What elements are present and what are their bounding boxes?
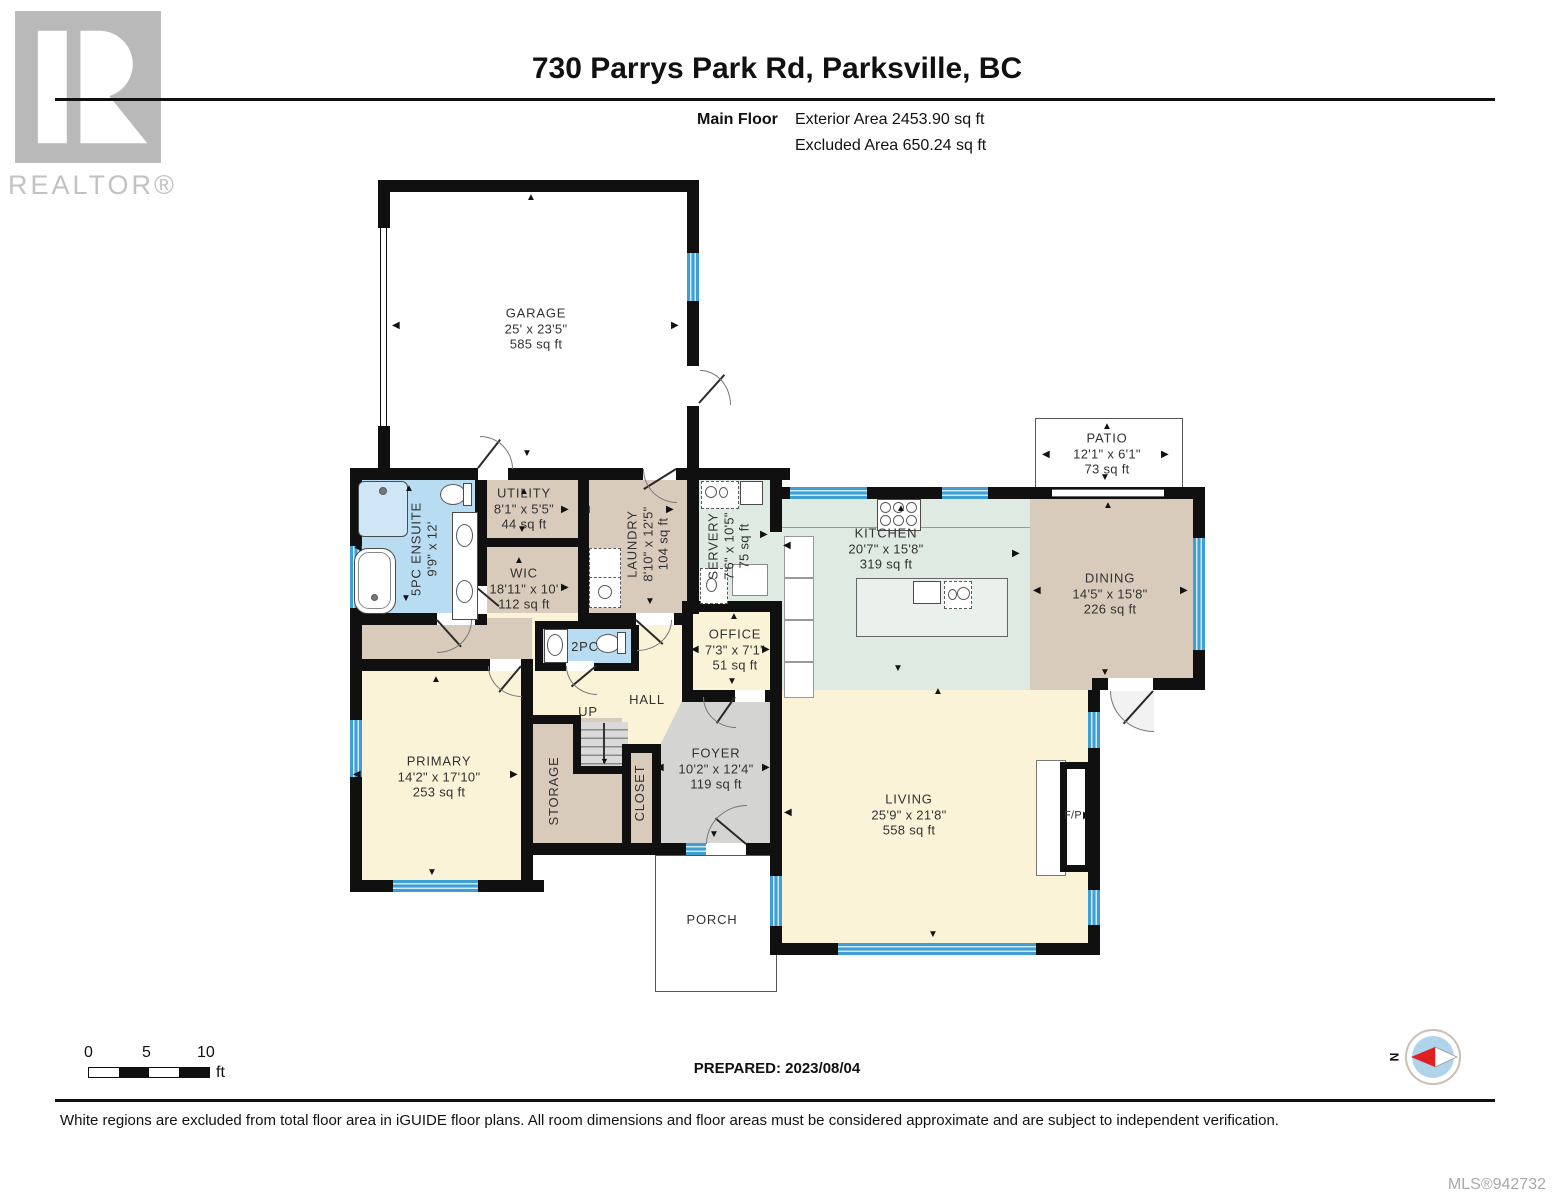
dim-arrow: ▼ — [893, 664, 903, 674]
wall — [652, 744, 661, 844]
room-dims: 25' x 23'5" — [505, 321, 568, 337]
floor-plan-page: REALTOR® 730 Parrys Park Rd, Parksville,… — [0, 0, 1553, 1200]
room-area: 75 sq ft — [737, 512, 753, 580]
room-label-laundry: LAUNDRY 8'10" x 12'5" 104 sq ft — [625, 506, 672, 581]
scale-bar: 0 5 10 ft — [84, 1044, 264, 1084]
room-area: 319 sq ft — [848, 557, 923, 573]
door-opening — [478, 468, 508, 480]
room-name: OFFICE — [705, 627, 765, 643]
header-divider — [55, 98, 1495, 101]
room-name: LIVING — [871, 792, 946, 808]
burner-icon — [880, 502, 891, 513]
room-area: 51 sq ft — [705, 658, 765, 674]
room-dims: 14'5" x 15'8" — [1072, 586, 1147, 602]
sink-icon — [547, 634, 563, 656]
patio-slider-door — [1052, 489, 1164, 497]
room-name: SERVERY — [706, 512, 722, 580]
room-dims: 10'2" x 12'4" — [678, 761, 753, 777]
room-name: DINING — [1072, 571, 1147, 587]
sink-icon — [456, 524, 473, 547]
garage-door-track — [380, 228, 387, 426]
room-label-porch: PORCH — [687, 912, 738, 928]
servery-sink-icon — [740, 481, 763, 505]
room-dims: 12'1" x 6'1" — [1073, 446, 1141, 462]
dim-arrow: ◀ — [691, 645, 699, 655]
dim-arrow: ▶ — [666, 505, 674, 515]
room-dims: 7'6" x 10'5" — [721, 512, 737, 580]
window — [393, 880, 478, 892]
room-dims: 8'10" x 12'5" — [640, 506, 656, 581]
dim-arrow: ▶ — [762, 645, 770, 655]
wall — [378, 180, 698, 192]
room-label-primary: PRIMARY 14'2" x 17'10" 253 sq ft — [398, 754, 481, 801]
room-name: WIC — [489, 566, 558, 582]
wall — [475, 538, 585, 547]
room-label-wic: WIC 18'11" x 10' 112 sq ft — [489, 566, 558, 613]
room-area: 585 sq ft — [505, 337, 568, 353]
door-opening — [735, 690, 765, 702]
burner-icon — [906, 515, 917, 526]
dim-arrow: ▶ — [762, 763, 770, 773]
room-label-patio: PATIO 12'1" x 6'1" 73 sq ft — [1073, 431, 1141, 478]
room-area: 104 sq ft — [656, 506, 672, 581]
exterior-area: Exterior Area 2453.90 sq ft — [795, 111, 984, 129]
door-opening — [706, 843, 746, 855]
room-label-dining: DINING 14'5" x 15'8" 226 sq ft — [1072, 571, 1147, 618]
room-dims: 14'2" x 17'10" — [398, 769, 481, 785]
dim-arrow: ◀ — [582, 505, 590, 515]
dim-arrow: ▶ — [1012, 549, 1020, 559]
dim-arrow: ▲ — [431, 675, 441, 685]
door-swing — [700, 370, 731, 405]
dim-arrow: ▼ — [1100, 668, 1110, 678]
toilet-tank-icon — [463, 483, 472, 506]
room-label-ensuite: 5PC ENSUITE 9'9" x 12' — [408, 502, 439, 596]
room-name: PATIO — [1073, 431, 1141, 447]
scale-unit: ft — [216, 1064, 225, 1082]
dim-arrow: ◀ — [690, 540, 698, 550]
wall — [350, 468, 790, 480]
room-area: 119 sq ft — [678, 777, 753, 793]
dim-arrow: ▼ — [727, 677, 737, 687]
room-label-living: LIVING 25'9" x 21'8" 558 sq ft — [871, 792, 946, 839]
room-dims: 9'9" x 12' — [424, 502, 440, 596]
window — [770, 876, 782, 926]
dim-arrow: ◀ — [353, 770, 361, 780]
burner-icon — [893, 515, 904, 526]
dim-arrow: ▶ — [561, 505, 569, 515]
prepared-date: PREPARED: 2023/08/04 — [694, 1060, 860, 1077]
dim-arrow: ▲ — [709, 694, 719, 704]
dim-arrow: ▲ — [526, 193, 536, 203]
room-dims: 8'1" x 5'5" — [494, 501, 554, 517]
dim-arrow: ◀ — [656, 763, 664, 773]
dim-arrow: ▲ — [519, 487, 529, 497]
wall — [530, 715, 578, 724]
room-name: PORCH — [687, 912, 738, 928]
island-sink-icon — [913, 581, 941, 604]
scale-tick-5: 5 — [142, 1044, 151, 1062]
window — [838, 943, 1036, 955]
realtor-logo-text: REALTOR® — [8, 170, 177, 201]
burner-icon — [906, 502, 917, 513]
room-label-kitchen: KITCHEN 20'7" x 15'8" 319 sq ft — [848, 526, 923, 573]
wall — [622, 744, 631, 844]
room-name: LAUNDRY — [625, 506, 641, 581]
room-label-closet: CLOSET — [632, 765, 648, 822]
room-label-servery: SERVERY 7'6" x 10'5" 75 sq ft — [706, 512, 753, 580]
dim-arrow: ▼ — [401, 594, 411, 604]
wall — [521, 659, 533, 892]
window — [1088, 890, 1100, 925]
dim-arrow: ▼ — [645, 597, 655, 607]
dryer-door-icon — [598, 585, 612, 599]
window — [1088, 712, 1100, 748]
footer-divider — [55, 1099, 1495, 1102]
burner-icon — [880, 515, 891, 526]
disclaimer-text: White regions are excluded from total fl… — [60, 1112, 1279, 1129]
mls-number: MLS®942732 — [1448, 1176, 1546, 1194]
wall — [687, 180, 699, 480]
compass-north-label: N — [1387, 1053, 1401, 1062]
dim-arrow: ▶ — [760, 530, 768, 540]
room-name: PRIMARY — [398, 754, 481, 770]
scale-bar-segments — [88, 1067, 210, 1078]
dim-arrow: ▶ — [1083, 811, 1091, 821]
room-label-2pc: 2PC — [571, 639, 599, 655]
room-name: STORAGE — [546, 757, 562, 826]
room-name: FOYER — [678, 746, 753, 762]
dim-arrow: ▼ — [522, 449, 532, 459]
room-area: 253 sq ft — [398, 785, 481, 801]
servery-burner-icon — [705, 486, 717, 498]
stairs-up-label: UP — [578, 704, 598, 720]
fireplace-label: F/P — [1064, 809, 1082, 822]
room-label-foyer: FOYER 10'2" x 12'4" 119 sq ft — [678, 746, 753, 793]
kitchen-cabinet — [784, 578, 814, 620]
room-name: 5PC ENSUITE — [408, 502, 424, 596]
room-label-storage: STORAGE — [546, 757, 562, 826]
dim-arrow: ▼ — [709, 830, 719, 840]
dim-arrow: ▶ — [1161, 450, 1169, 460]
door-opening — [687, 366, 699, 406]
compass-icon — [1404, 1028, 1462, 1086]
room-name: F/P — [1064, 809, 1082, 822]
excluded-area: Excluded Area 650.24 sq ft — [795, 137, 986, 155]
dim-arrow: ▲ — [729, 612, 739, 622]
drain-icon — [371, 594, 378, 601]
realtor-logo — [12, 8, 164, 166]
room-name: HALL — [629, 692, 665, 708]
room-area: 112 sq ft — [489, 597, 558, 613]
dim-arrow: ◀ — [1033, 586, 1041, 596]
room-name: KITCHEN — [848, 526, 923, 542]
page-title: 730 Parrys Park Rd, Parksville, BC — [532, 52, 1022, 86]
room-dims: 25'9" x 21'8" — [871, 807, 946, 823]
kitchen-cabinet — [784, 662, 814, 698]
room-label-garage: GARAGE 25' x 23'5" 585 sq ft — [505, 306, 568, 353]
floor-label: Main Floor — [697, 111, 778, 129]
door-swing — [480, 436, 513, 469]
dim-arrow: ◀ — [784, 808, 792, 818]
window — [942, 487, 988, 499]
servery-burner-icon — [719, 487, 728, 498]
room-area: 558 sq ft — [871, 823, 946, 839]
dishwasher-dot-icon — [948, 589, 957, 600]
room-dims: 7'3" x 7'1" — [705, 642, 765, 658]
wall — [378, 180, 390, 228]
dim-arrow: ▼ — [1100, 473, 1110, 483]
room-name: UP — [578, 704, 598, 720]
window — [790, 487, 867, 499]
scale-tick-0: 0 — [84, 1044, 93, 1062]
toilet-tank-icon — [617, 632, 626, 654]
wine-bottle-icon — [706, 578, 717, 592]
door-opening — [1108, 678, 1153, 690]
room-name: GARAGE — [505, 306, 568, 322]
dim-arrow: ▲ — [1103, 501, 1113, 511]
dim-arrow: ◀ — [354, 543, 362, 553]
dim-arrow: ▲ — [933, 687, 943, 697]
dim-arrow: ▲ — [514, 556, 524, 566]
wall — [573, 766, 628, 774]
room-label-office: OFFICE 7'3" x 7'1" 51 sq ft — [705, 627, 765, 674]
room-name: 2PC — [571, 639, 599, 655]
compass: N — [1388, 1028, 1464, 1088]
dim-arrow: ▶ — [1180, 586, 1188, 596]
dim-arrow: ▶ — [510, 770, 518, 780]
room-area: 226 sq ft — [1072, 602, 1147, 618]
room-name: CLOSET — [632, 765, 648, 822]
wall — [770, 468, 782, 532]
room-dims: 18'11" x 10' — [489, 581, 558, 597]
dim-arrow: ▲ — [404, 484, 414, 494]
window — [1193, 538, 1205, 650]
washer-icon — [589, 548, 621, 579]
scale-tick-10: 10 — [197, 1044, 215, 1062]
window — [686, 843, 706, 855]
dishwasher-dial-icon — [957, 587, 970, 600]
dim-arrow: ◀ — [1042, 450, 1050, 460]
window — [687, 253, 699, 301]
dim-arrow: ▼ — [928, 930, 938, 940]
dim-arrow: ◀ — [783, 541, 791, 551]
dim-arrow: ◀ — [392, 321, 400, 331]
kitchen-cabinet — [784, 620, 814, 662]
dim-arrow: ◀ — [479, 505, 487, 515]
shower-head-icon — [379, 487, 387, 495]
dim-arrow: ▼ — [427, 868, 437, 878]
dim-arrow: ▶ — [671, 321, 679, 331]
dim-arrow: ▲ — [1102, 422, 1112, 432]
dim-arrow: ▶ — [561, 583, 569, 593]
door-swing — [1110, 691, 1154, 732]
dim-arrow: ▲ — [896, 504, 906, 514]
sink-icon — [456, 580, 473, 603]
wall — [578, 538, 589, 624]
room-label-hall: HALL — [629, 692, 665, 708]
stair-direction-arrow: ▼ — [600, 757, 609, 766]
dim-arrow: ▼ — [517, 525, 527, 535]
room-dims: 20'7" x 15'8" — [848, 541, 923, 557]
